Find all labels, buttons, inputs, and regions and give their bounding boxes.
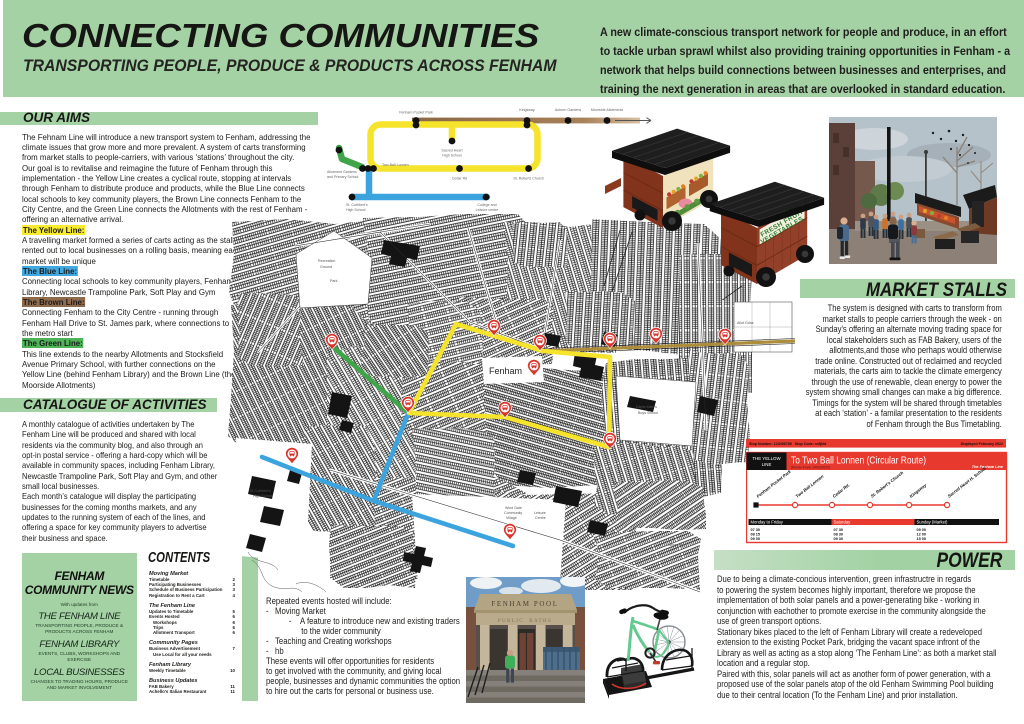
svg-text:St. Cuthbert's: St. Cuthbert's bbox=[346, 203, 368, 207]
svg-text:08 30: 08 30 bbox=[834, 533, 844, 537]
svg-text:and Primary School: and Primary School bbox=[327, 175, 359, 179]
svg-text:Sunday (Market): Sunday (Market) bbox=[917, 520, 949, 525]
svg-text:PUBLIC BATHS: PUBLIC BATHS bbox=[498, 619, 552, 624]
svg-text:Park: Park bbox=[330, 279, 338, 283]
svg-text:Centre: Centre bbox=[535, 516, 546, 520]
svg-text:Fenham Pocket Park: Fenham Pocket Park bbox=[399, 111, 433, 115]
svg-text:High School: High School bbox=[442, 154, 462, 158]
svg-text:(Route From 14/02/2022): (Route From 14/02/2022) bbox=[791, 466, 830, 470]
svg-text:Kingsway: Kingsway bbox=[519, 108, 535, 112]
svg-text:Two Ball Lonnen: Two Ball Lonnen bbox=[382, 163, 409, 167]
svg-text:St Cuthbert's: St Cuthbert's bbox=[250, 489, 271, 493]
svg-text:Stop Number: 123456789 Stop: Stop Number: 123456789 Stop Code: xxfjkl… bbox=[749, 442, 826, 446]
svg-text:College and: College and bbox=[477, 203, 496, 207]
svg-text:Recreation: Recreation bbox=[318, 259, 335, 263]
svg-text:High School: High School bbox=[346, 208, 366, 212]
svg-text:12 00: 12 00 bbox=[917, 533, 927, 537]
svg-text:Dame Allen's: Dame Allen's bbox=[636, 405, 657, 409]
svg-text:FENHAM POOL: FENHAM POOL bbox=[491, 600, 558, 608]
svg-text:Wool Gate: Wool Gate bbox=[505, 506, 522, 510]
svg-text:Displayed February 2022: Displayed February 2022 bbox=[961, 442, 1003, 446]
svg-text:Saturday: Saturday bbox=[834, 520, 852, 525]
svg-text:LINE: LINE bbox=[762, 462, 772, 467]
svg-text:Allotment Gardens: Allotment Gardens bbox=[327, 170, 357, 174]
svg-text:Leisure: Leisure bbox=[534, 511, 546, 515]
svg-text:Wingrove: Wingrove bbox=[668, 543, 683, 547]
svg-text:07 30: 07 30 bbox=[834, 528, 844, 532]
svg-text:07 30: 07 30 bbox=[751, 528, 761, 532]
svg-text:15 00: 15 00 bbox=[917, 537, 927, 541]
svg-text:09 00: 09 00 bbox=[751, 537, 761, 541]
svg-text:09 30: 09 30 bbox=[834, 537, 844, 541]
svg-text:High School: High School bbox=[253, 494, 273, 498]
svg-text:The Fenham Line: The Fenham Line bbox=[972, 465, 1003, 469]
svg-text:Village: Village bbox=[506, 516, 517, 520]
svg-text:Fenham: Fenham bbox=[489, 366, 522, 376]
svg-text:THE YELLOW: THE YELLOW bbox=[752, 456, 781, 461]
svg-text:Ground: Ground bbox=[320, 265, 332, 269]
svg-text:Community: Community bbox=[504, 511, 522, 515]
svg-text:Leisure centre: Leisure centre bbox=[476, 208, 499, 212]
svg-text:09 00: 09 00 bbox=[917, 528, 927, 532]
svg-text:Allot Gdns: Allot Gdns bbox=[737, 321, 754, 325]
svg-text:Monday to Friday: Monday to Friday bbox=[751, 520, 784, 525]
svg-text:Cedar Rd: Cedar Rd bbox=[452, 177, 467, 181]
svg-text:St. Roberts Church: St. Roberts Church bbox=[513, 177, 544, 181]
svg-text:Auburn Gardens: Auburn Gardens bbox=[555, 108, 582, 112]
svg-text:08 15: 08 15 bbox=[751, 533, 761, 537]
svg-text:Boys School: Boys School bbox=[638, 411, 658, 415]
svg-text:Sacred Heart: Sacred Heart bbox=[441, 149, 462, 153]
